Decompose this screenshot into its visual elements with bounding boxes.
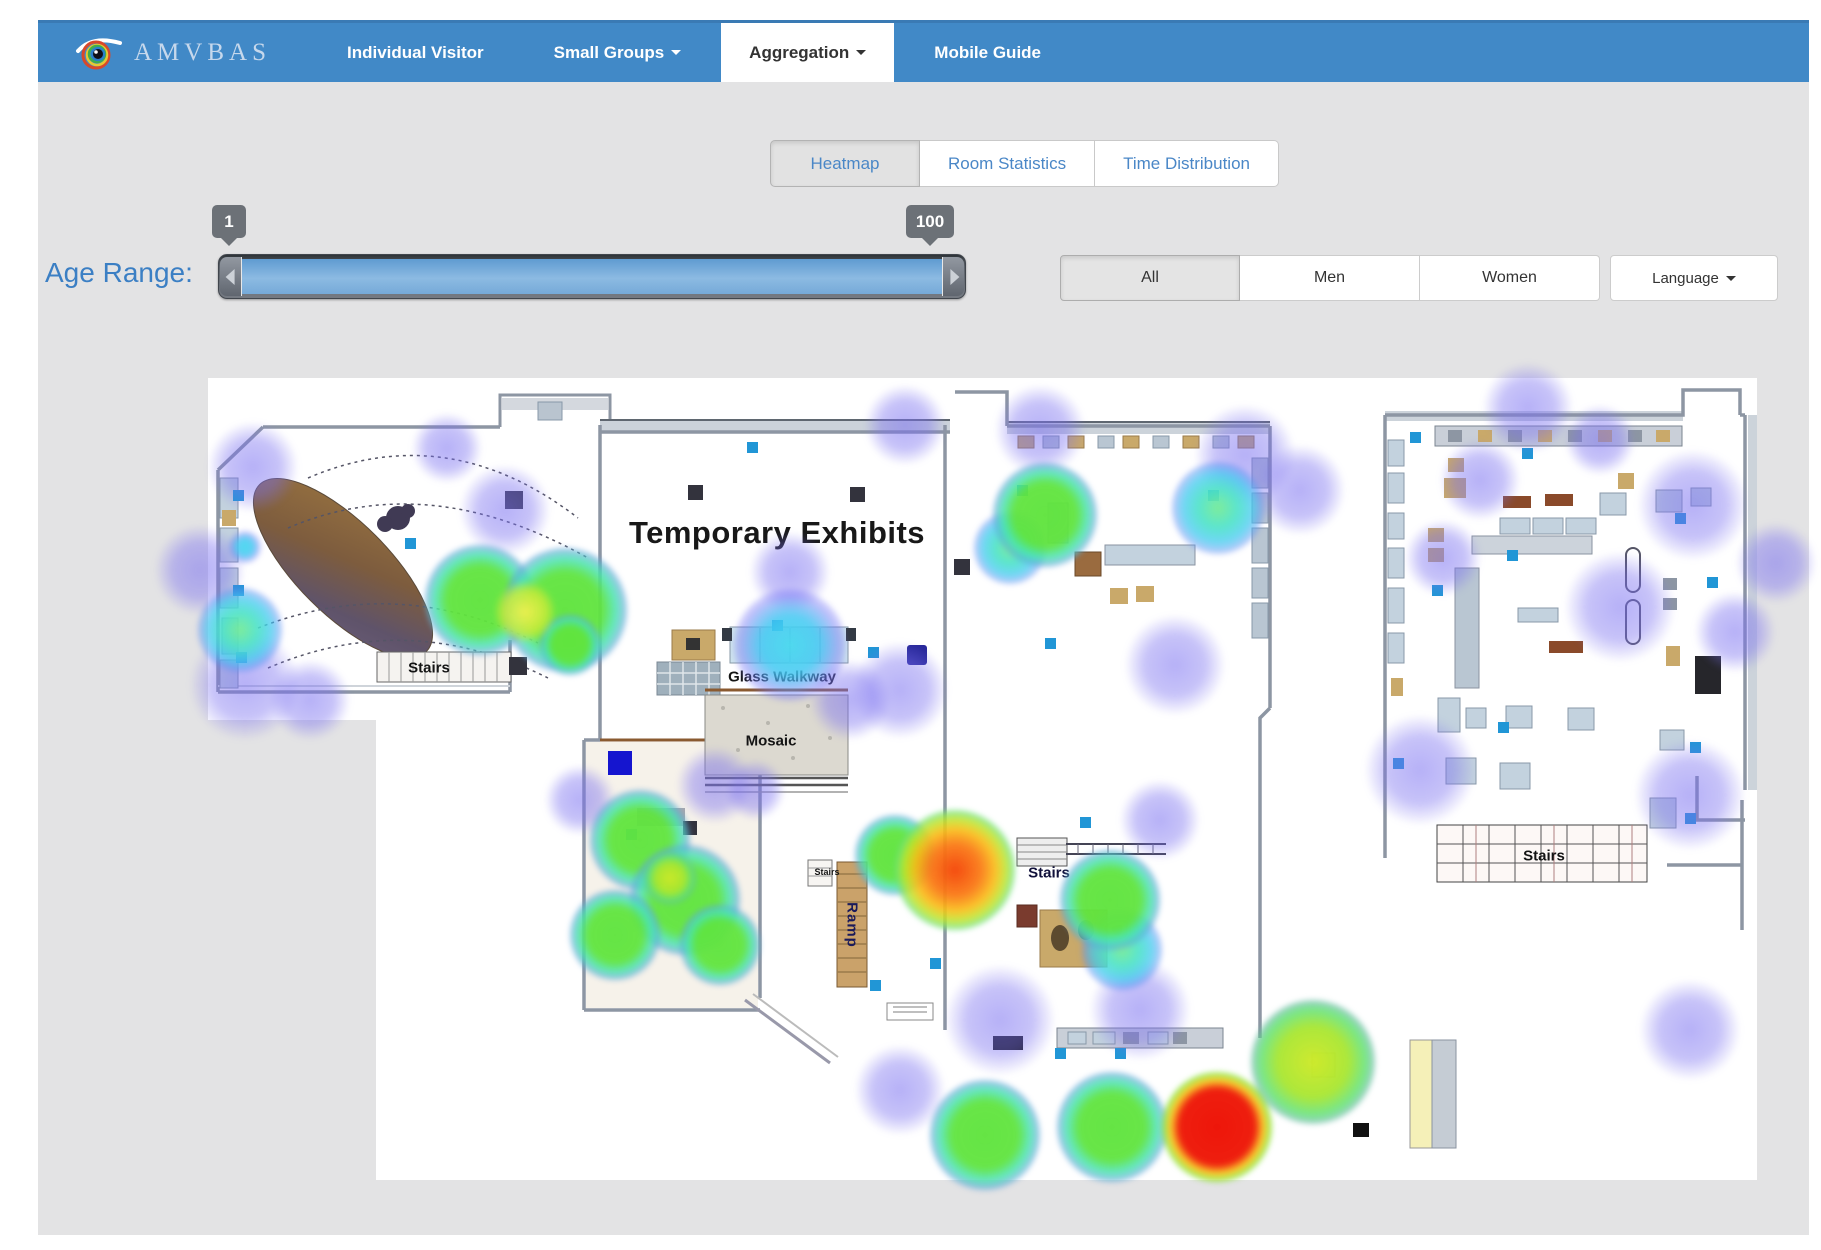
heat-blob-purple [1736,523,1816,603]
heat-blob-purple [412,413,482,483]
gender-filter-group: All Men Women Language [1060,255,1778,301]
heat-blob-teal [1172,462,1264,554]
heat-blob-purple [1483,363,1573,453]
slider-max-tooltip: 100 [906,205,954,238]
nav-item-small-groups[interactable]: Small Groups [526,23,710,82]
heat-blob-yellow [495,582,555,642]
slider-fill [241,259,943,294]
heat-blob-green [680,905,760,985]
heat-blob-yellowgreen [644,852,696,904]
nav-item-label: Individual Visitor [347,43,484,63]
heat-blob-purple [1635,740,1745,850]
heat-blob-green [570,890,660,980]
heat-blob-purple [1125,615,1225,715]
heat-blob-purple [1120,780,1200,860]
view-tabs: Heatmap Room Statistics Time Distributio… [770,140,1279,187]
slider-min-tooltip: 1 [212,205,246,238]
heat-blob-green [993,463,1097,567]
slider-handle-max[interactable] [942,257,964,296]
age-range-slider[interactable] [218,254,966,299]
heat-blob-cyan [734,589,846,701]
language-dropdown-button[interactable]: Language [1610,255,1778,301]
heat-blob-purple [865,385,945,465]
heat-blob-purple [1640,980,1740,1080]
tab-label: Time Distribution [1123,154,1250,174]
heat-blob-purple [460,465,550,555]
tab-heatmap[interactable]: Heatmap [770,140,920,187]
nav-item-label: Small Groups [554,43,665,63]
heat-blob-purple [945,965,1055,1075]
arrow-right-icon [950,269,959,285]
heatmap-overlay [208,378,1757,1180]
nav-item-individual-visitor[interactable]: Individual Visitor [319,23,512,82]
heat-blob-purple [995,385,1085,475]
filter-women-button[interactable]: Women [1420,255,1600,301]
nav-item-label: Aggregation [749,43,849,63]
heat-blob-green [1057,1072,1167,1182]
filter-all-button[interactable]: All [1060,255,1240,301]
slider-min-value: 1 [224,212,233,232]
navbar-brand[interactable]: AMVBAS [74,23,271,82]
nav-item-mobile-guide[interactable]: Mobile Guide [906,23,1069,82]
heat-blob-purple [1255,445,1345,535]
heat-blob-green [1060,850,1160,950]
filter-label: All [1141,269,1159,287]
heat-blob-purple [1638,450,1748,560]
heat-blob-cyan [229,531,261,563]
dropdown-caret-icon [1726,276,1736,281]
slider-max-value: 100 [916,212,944,232]
navbar: AMVBAS Individual Visitor Small Groups A… [38,20,1809,82]
heat-blob-purple [1405,520,1481,596]
arrow-left-icon [225,269,234,285]
heat-blob-purple [725,760,785,820]
filter-label: Language [1652,270,1719,287]
filter-label: Men [1314,269,1345,287]
brand-text: AMVBAS [134,39,271,67]
heat-blob-teal [198,588,282,672]
heatmap-floorplan[interactable]: Temporary ExhibitsGlass WalkwayMosaicSta… [208,378,1757,1180]
heat-blob-yellowgreen [1251,1000,1375,1124]
nav-items: Individual Visitor Small Groups Aggregat… [319,23,1069,82]
age-range-label: Age Range: [45,257,193,289]
heat-blob-purple [1440,440,1520,520]
slider-handle-min[interactable] [220,257,242,296]
heat-blob-purple [1365,715,1475,825]
tab-label: Heatmap [811,154,880,174]
heat-blob-red [1162,1072,1272,1182]
heat-blob-purple [1565,405,1635,475]
filter-label: Women [1482,269,1537,287]
heat-blob-green [930,1080,1040,1190]
tab-room-statistics[interactable]: Room Statistics [920,140,1095,187]
heat-blob-purple [852,642,948,738]
dropdown-caret-icon [856,50,866,55]
eye-logo-icon [74,33,124,73]
dropdown-caret-icon [671,50,681,55]
heat-blob-purple [208,422,298,512]
nav-item-aggregation[interactable]: Aggregation [721,23,894,82]
tab-label: Room Statistics [948,154,1066,174]
filter-men-button[interactable]: Men [1240,255,1420,301]
heat-blob-purple [1695,592,1775,672]
heat-blob-purple [270,660,350,740]
nav-item-label: Mobile Guide [934,43,1041,63]
heat-blob-orange [895,810,1015,930]
heat-blob-purple [1565,552,1675,662]
tab-time-distribution[interactable]: Time Distribution [1095,140,1279,187]
